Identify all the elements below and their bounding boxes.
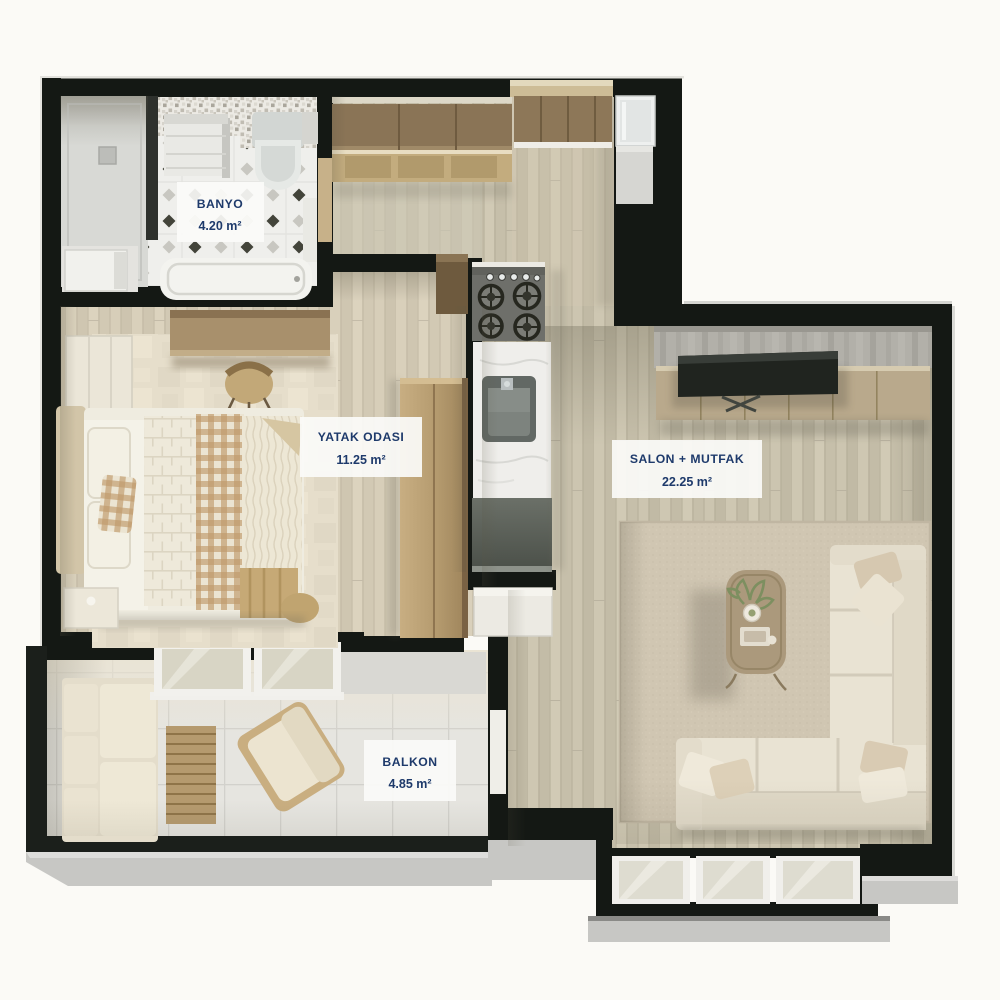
svg-text:BANYO: BANYO — [197, 197, 244, 211]
svg-text:4.20 m²: 4.20 m² — [198, 219, 241, 233]
svg-text:BALKON: BALKON — [382, 755, 437, 769]
svg-text:SALON + MUTFAK: SALON + MUTFAK — [630, 452, 744, 466]
svg-text:11.25 m²: 11.25 m² — [336, 453, 385, 467]
svg-text:4.85 m²: 4.85 m² — [388, 777, 431, 791]
svg-text:22.25 m²: 22.25 m² — [662, 475, 712, 489]
svg-text:YATAK ODASI: YATAK ODASI — [318, 430, 405, 444]
